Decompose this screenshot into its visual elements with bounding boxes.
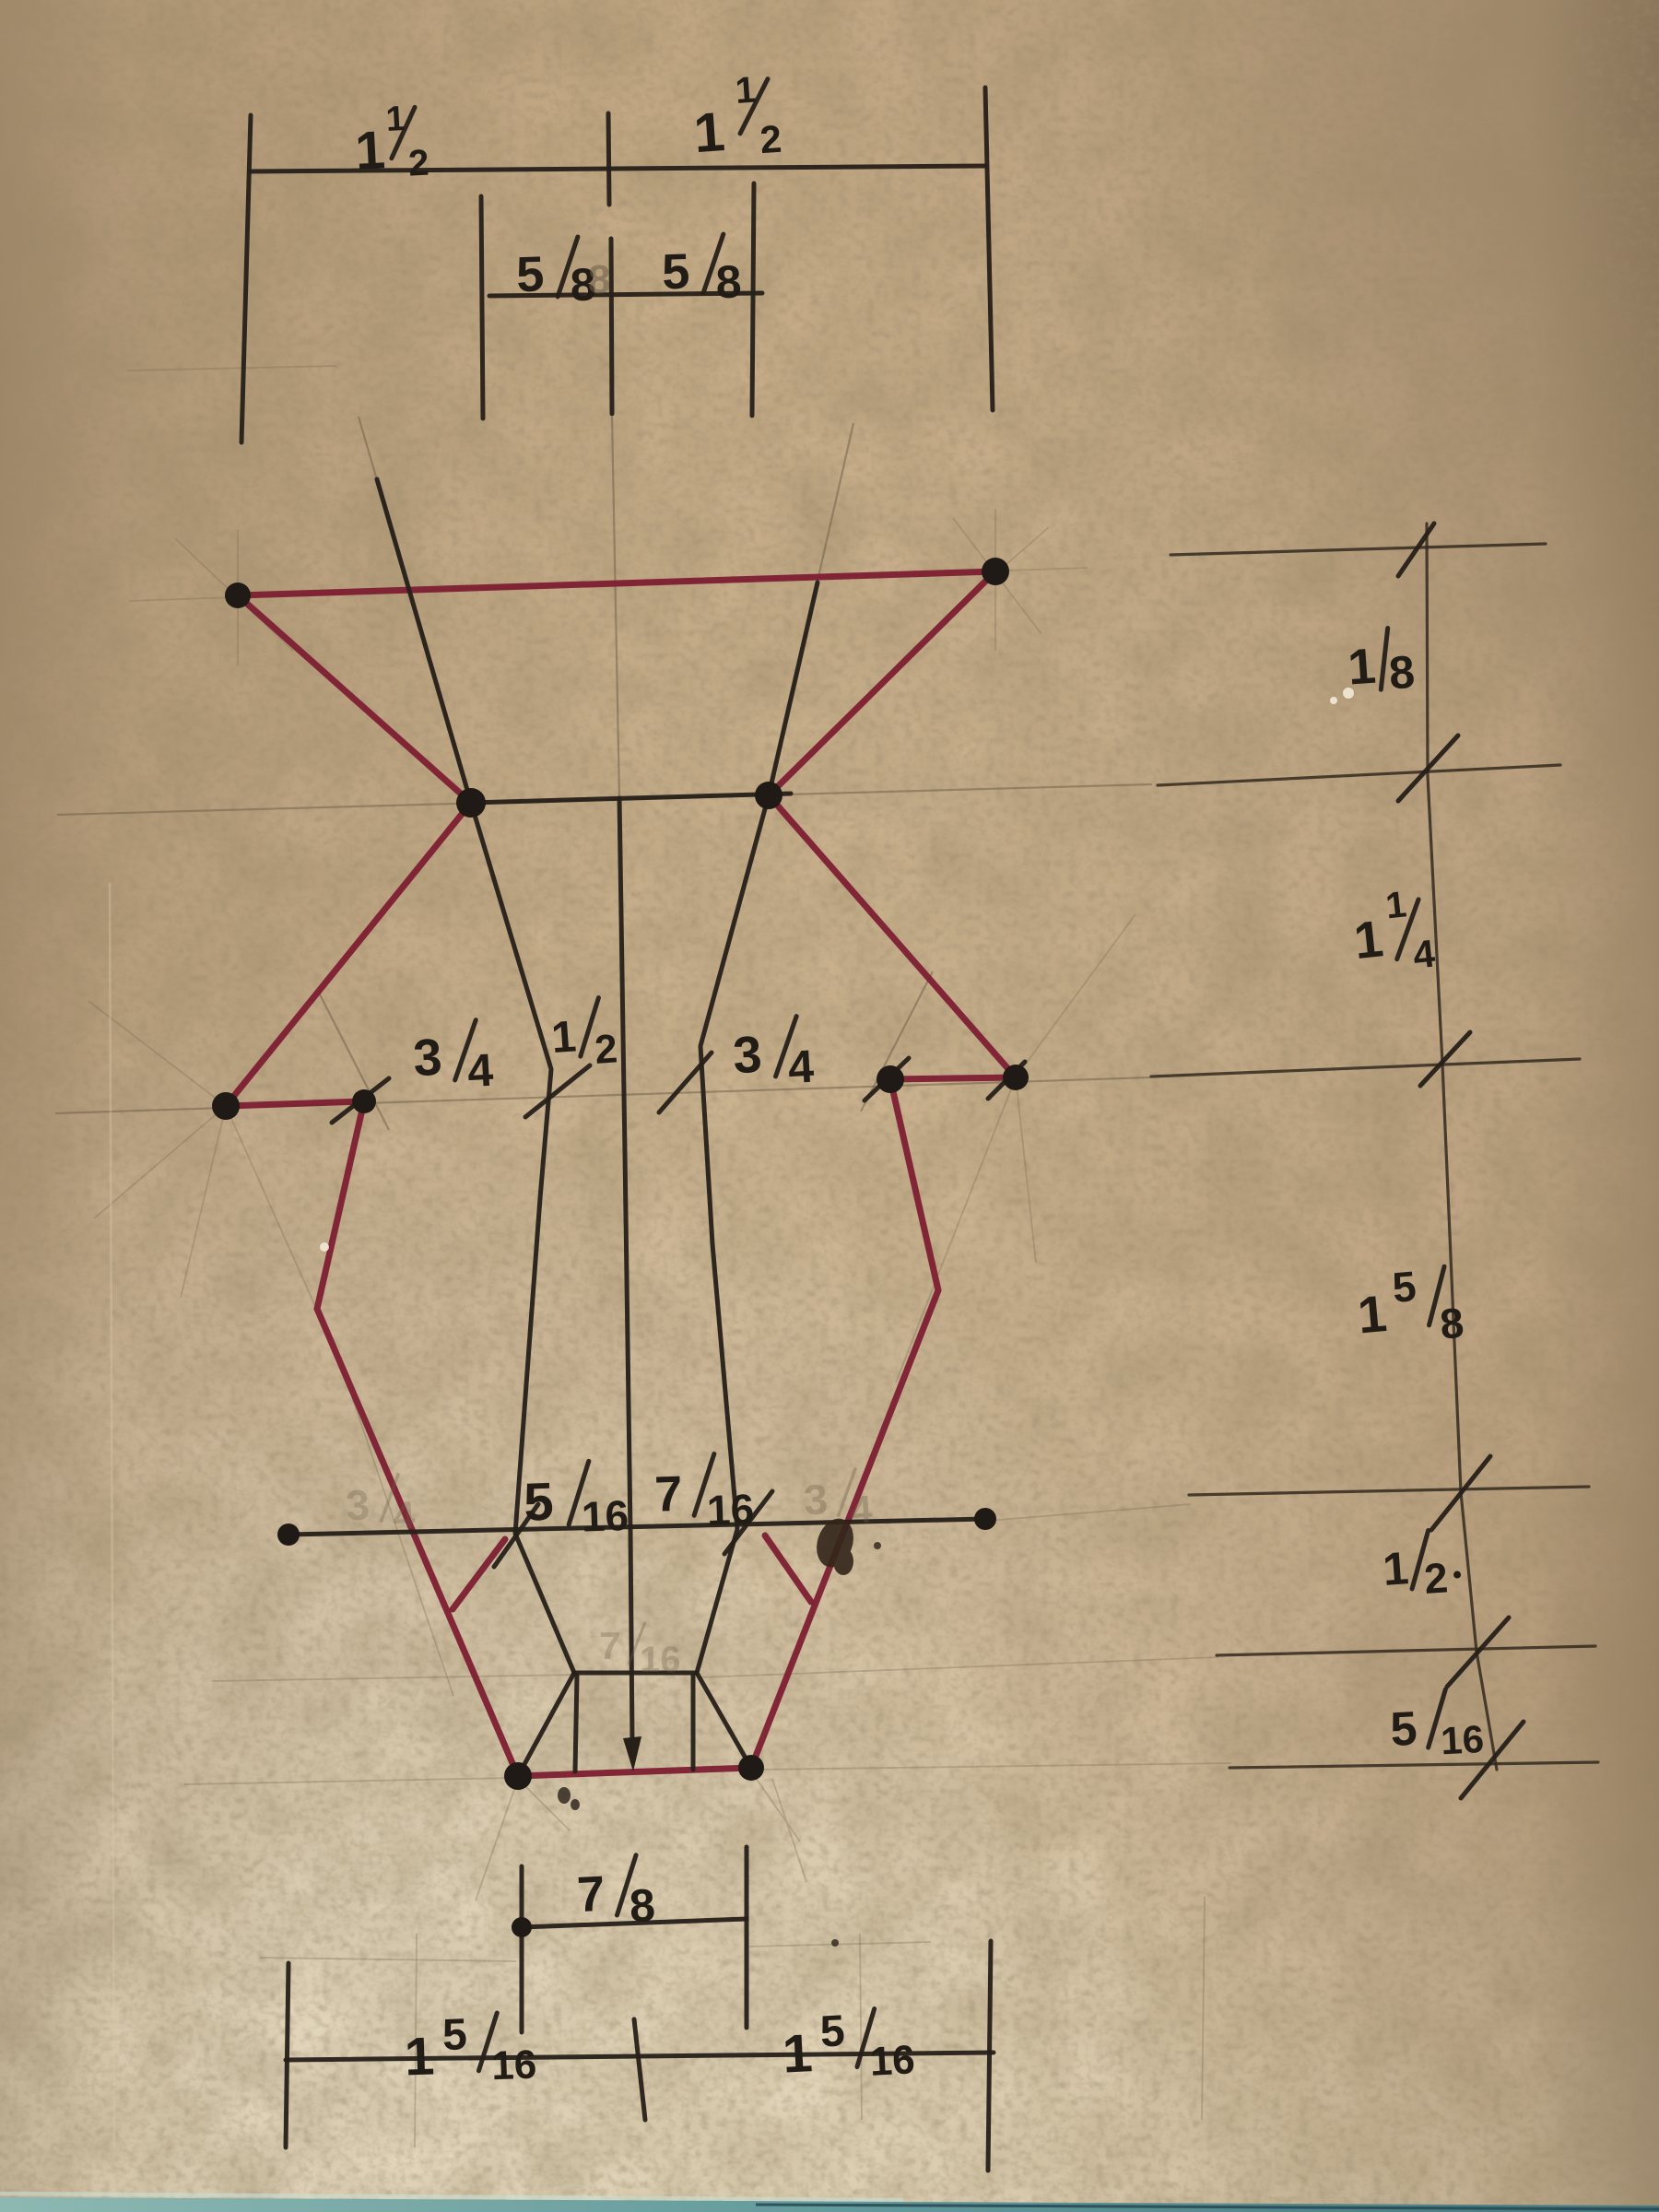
svg-text:16: 16 xyxy=(490,2042,537,2089)
svg-text:5: 5 xyxy=(661,243,690,300)
svg-text:2: 2 xyxy=(594,1026,619,1073)
svg-text:5: 5 xyxy=(523,1472,555,1533)
svg-text:1: 1 xyxy=(1351,909,1386,970)
svg-text:8: 8 xyxy=(1387,646,1417,700)
svg-text:16: 16 xyxy=(581,1491,629,1541)
svg-text:3: 3 xyxy=(345,1480,371,1529)
svg-text:2: 2 xyxy=(1422,1553,1449,1603)
svg-text:7: 7 xyxy=(599,1624,620,1667)
svg-text:1: 1 xyxy=(1346,639,1377,696)
svg-text:1: 1 xyxy=(354,120,387,182)
svg-text:1: 1 xyxy=(692,100,727,164)
svg-text:1: 1 xyxy=(550,1012,578,1063)
svg-text:4: 4 xyxy=(466,1044,495,1097)
svg-text:1: 1 xyxy=(781,2023,814,2085)
svg-text:7: 7 xyxy=(653,1466,683,1523)
svg-text:1: 1 xyxy=(1382,1542,1411,1595)
svg-text:4: 4 xyxy=(393,1493,417,1537)
svg-text:4: 4 xyxy=(787,1041,816,1093)
svg-text:1: 1 xyxy=(1383,884,1408,926)
svg-text:3: 3 xyxy=(732,1025,763,1085)
svg-text:5: 5 xyxy=(515,246,545,302)
svg-text:5: 5 xyxy=(441,2010,468,2060)
svg-text:8: 8 xyxy=(588,257,610,302)
svg-text:16: 16 xyxy=(706,1485,755,1535)
svg-text:4: 4 xyxy=(850,1488,874,1532)
svg-text:1: 1 xyxy=(404,2026,436,2087)
svg-text:3: 3 xyxy=(803,1475,829,1524)
svg-text:5: 5 xyxy=(1391,1262,1418,1312)
svg-text:5: 5 xyxy=(1389,1702,1418,1757)
svg-text:8: 8 xyxy=(1438,1299,1465,1348)
svg-text:1: 1 xyxy=(1356,1284,1390,1344)
svg-text:16: 16 xyxy=(868,2037,915,2084)
svg-text:3: 3 xyxy=(412,1028,443,1088)
svg-text:7: 7 xyxy=(576,1866,606,1923)
svg-text:8: 8 xyxy=(715,255,743,308)
svg-text:16: 16 xyxy=(1440,1717,1485,1762)
svg-text:5: 5 xyxy=(819,2006,846,2056)
svg-text:16: 16 xyxy=(640,1640,681,1680)
svg-text:2: 2 xyxy=(407,143,430,184)
svg-text:8: 8 xyxy=(629,1879,657,1932)
svg-text:2: 2 xyxy=(759,117,783,162)
